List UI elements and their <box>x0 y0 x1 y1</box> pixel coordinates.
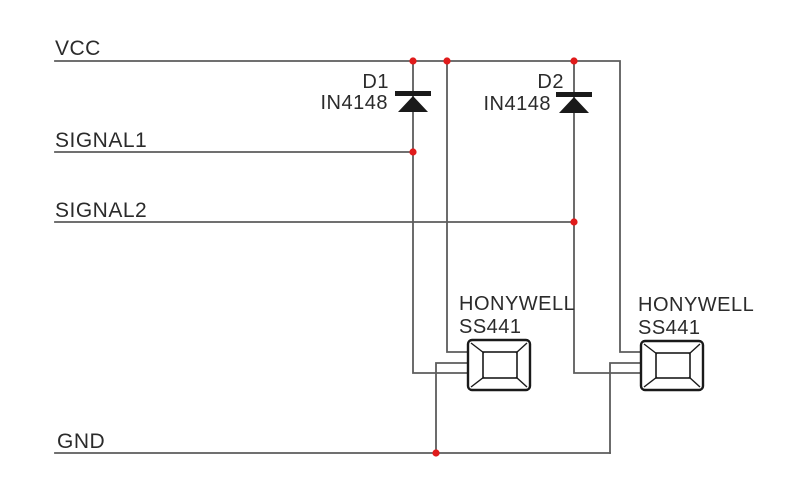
signal2-rail-label: SIGNAL2 <box>55 199 147 222</box>
junction-gnd-sensor1 <box>432 449 439 456</box>
junction-vcc-d1 <box>409 57 416 64</box>
diode-d2-part-number: IN4148 <box>484 93 552 115</box>
junction-signal1-d1 <box>409 148 416 155</box>
diode-d1-part-number: IN4148 <box>321 92 389 114</box>
junction-vcc-d2 <box>570 57 577 64</box>
signal1-rail-label: SIGNAL1 <box>55 129 147 152</box>
diode-d1-cathode-bar <box>395 91 431 96</box>
junction-signal2-d2 <box>570 218 577 225</box>
sensor1-package-symbol <box>468 340 530 390</box>
sensor-symbols <box>468 340 703 390</box>
diode-d2-symbol <box>556 92 592 113</box>
vcc-rail-label: VCC <box>55 37 101 60</box>
schematic-canvas: VCC SIGNAL1 SIGNAL2 GND D1 IN4148 D2 IN4… <box>0 0 800 500</box>
gnd-rail-label: GND <box>57 430 105 453</box>
junction-vcc-sensor1 <box>443 57 450 64</box>
hall-sensor-schematic: VCC SIGNAL1 SIGNAL2 GND D1 IN4148 D2 IN4… <box>0 0 800 500</box>
wire-sensor2-gnd <box>610 363 641 453</box>
wire-sensor1-gnd <box>436 363 468 453</box>
diode-d1-anode-triangle <box>398 96 428 112</box>
sensor1-model-label: SS441 <box>459 316 522 338</box>
diode-d2-designator: D2 <box>537 71 564 93</box>
diode-d1-designator: D1 <box>362 71 389 93</box>
diode-d2-anode-triangle <box>559 97 589 113</box>
sensor2-package-symbol <box>641 341 703 390</box>
junction-dots <box>409 57 577 456</box>
wires <box>55 61 641 453</box>
diode-d1-symbol <box>395 91 431 112</box>
sensor2-brand-label: HONYWELL <box>638 294 754 316</box>
sensor1-brand-label: HONYWELL <box>459 293 575 315</box>
sensor2-model-label: SS441 <box>638 317 701 339</box>
